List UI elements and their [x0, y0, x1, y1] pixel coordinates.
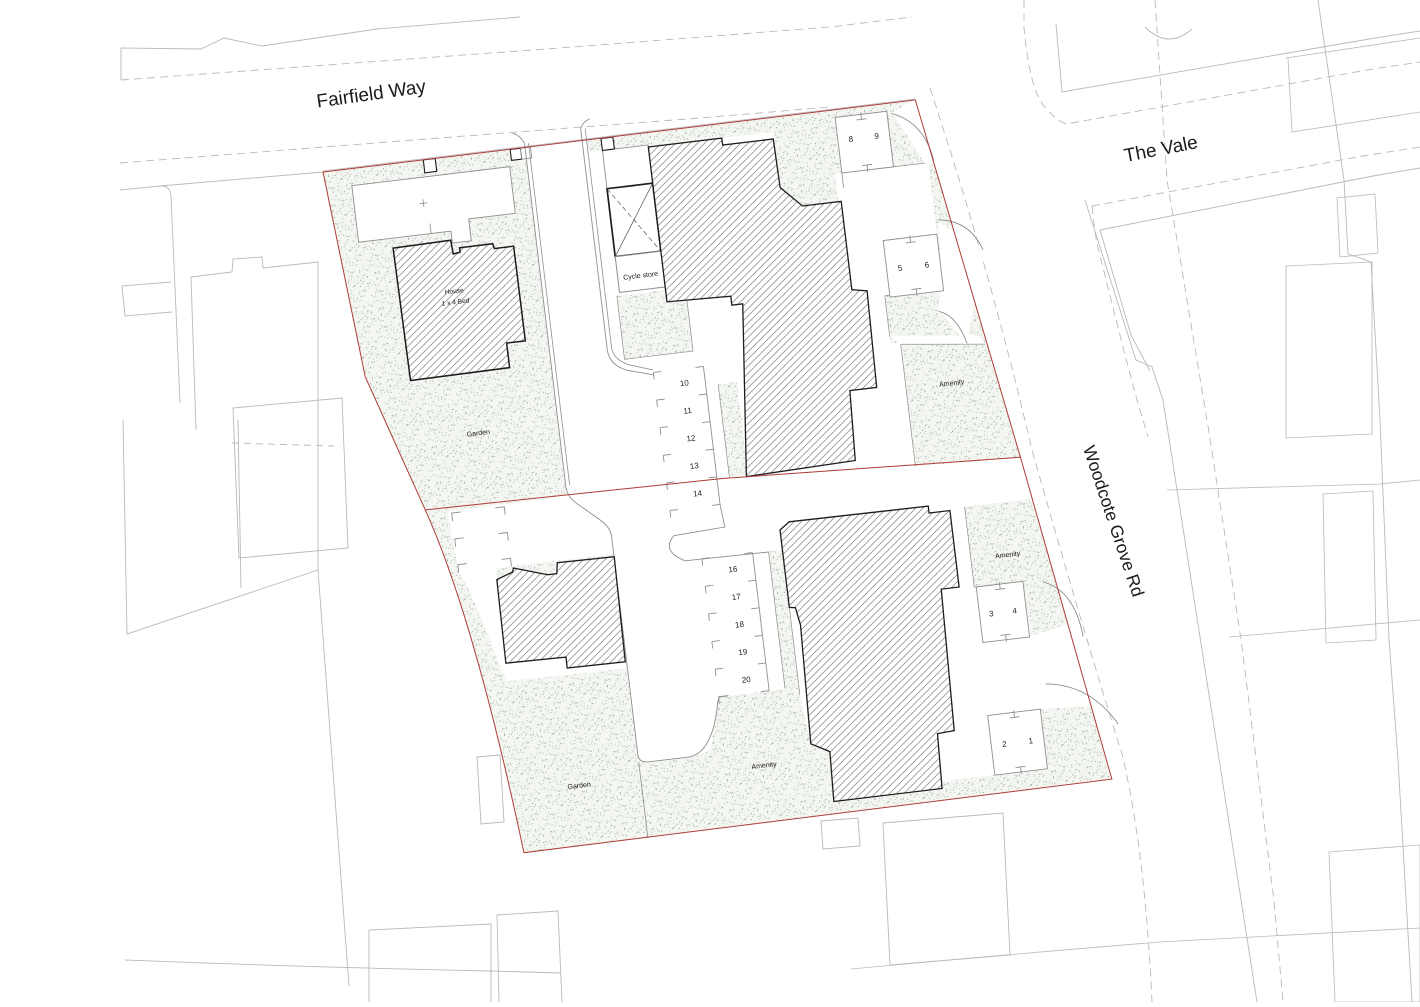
svg-text:19: 19 — [738, 647, 748, 657]
svg-text:13: 13 — [689, 461, 699, 471]
svg-text:11: 11 — [683, 406, 693, 416]
svg-text:10: 10 — [679, 378, 689, 388]
svg-text:14: 14 — [693, 489, 703, 499]
svg-text:18: 18 — [735, 620, 745, 630]
svg-text:12: 12 — [686, 433, 696, 443]
svg-text:17: 17 — [731, 592, 741, 602]
svg-text:16: 16 — [728, 564, 738, 574]
svg-text:20: 20 — [741, 675, 751, 685]
